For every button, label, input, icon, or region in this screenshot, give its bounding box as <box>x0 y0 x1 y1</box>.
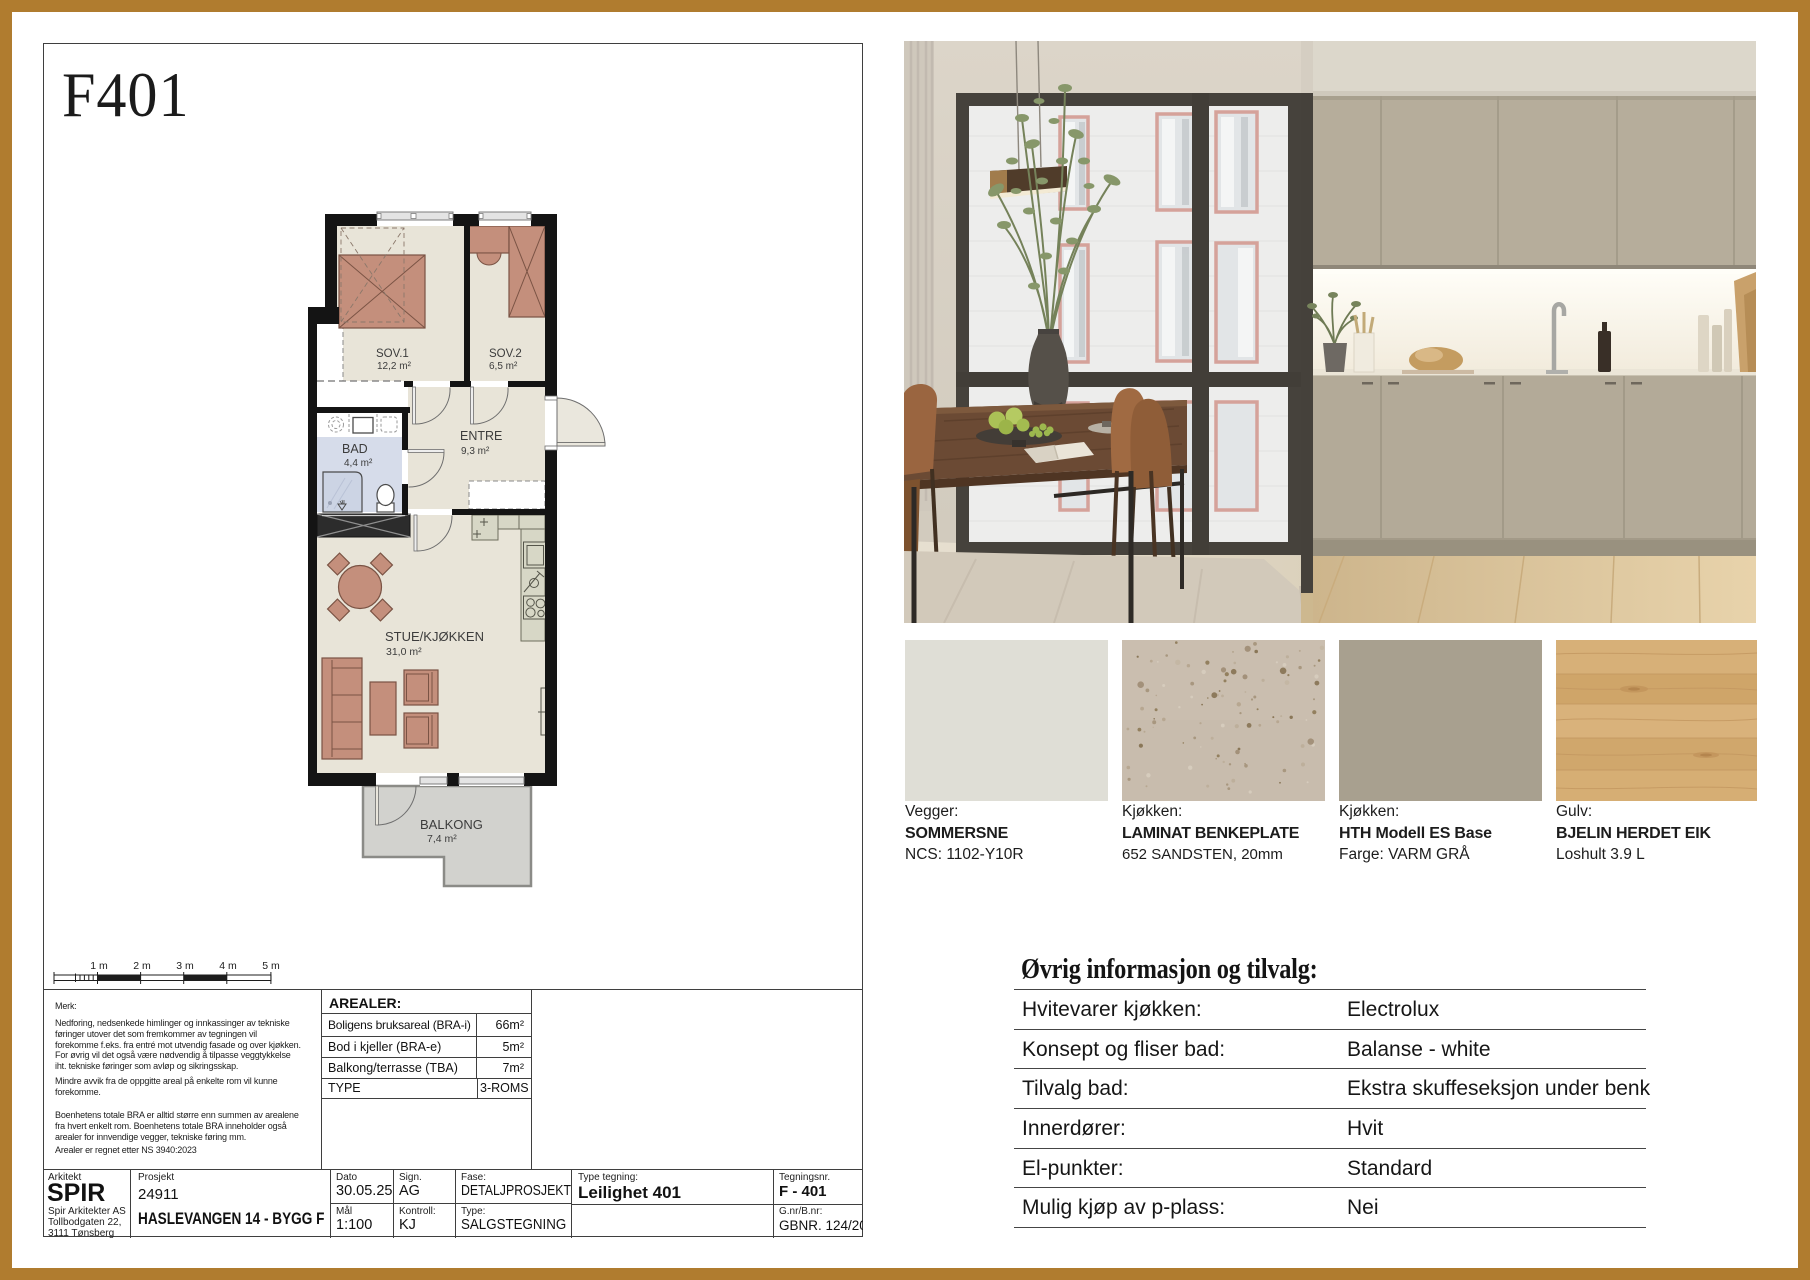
svg-text:BALKONG: BALKONG <box>420 817 483 832</box>
svg-text:9,3 m²: 9,3 m² <box>461 446 490 457</box>
svg-text:7,4 m²: 7,4 m² <box>427 833 457 845</box>
svg-text:4 m: 4 m <box>219 960 237 972</box>
svg-text:2 m: 2 m <box>133 960 151 972</box>
svg-text:31,0 m²: 31,0 m² <box>386 646 422 658</box>
svg-text:12,2 m²: 12,2 m² <box>377 361 412 372</box>
svg-text:ENTRE: ENTRE <box>460 429 502 443</box>
svg-text:5 m: 5 m <box>262 960 280 972</box>
svg-text:STUE/KJØKKEN: STUE/KJØKKEN <box>385 629 484 644</box>
svg-text:1 m: 1 m <box>90 960 108 972</box>
svg-text:SOV.1: SOV.1 <box>376 348 409 360</box>
svg-text:BAD: BAD <box>342 442 368 456</box>
svg-text:3 m: 3 m <box>176 960 194 972</box>
svg-text:4,4 m²: 4,4 m² <box>344 458 373 469</box>
svg-text:SOV.2: SOV.2 <box>489 348 522 360</box>
svg-text:6,5 m²: 6,5 m² <box>489 361 518 372</box>
